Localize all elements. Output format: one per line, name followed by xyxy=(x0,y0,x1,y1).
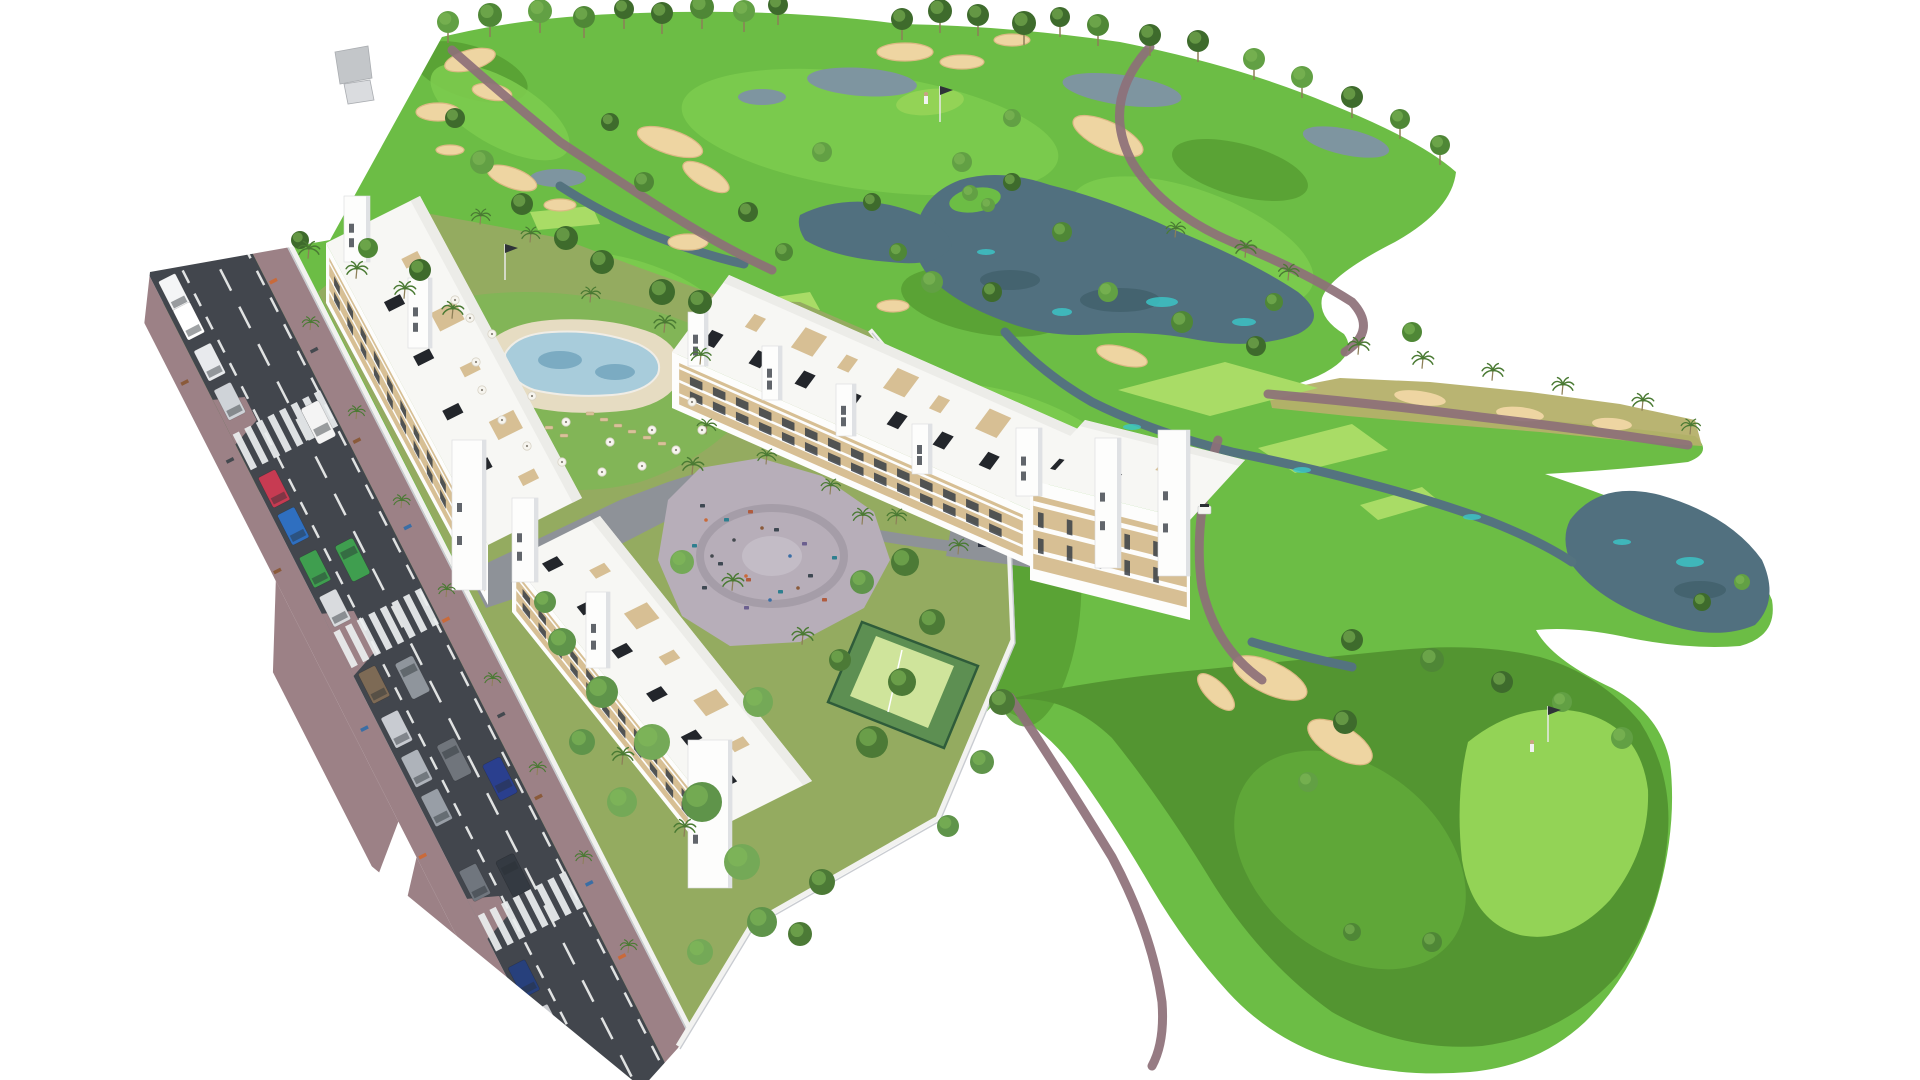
tree-highlight xyxy=(812,871,826,885)
palm-tree xyxy=(1552,378,1574,395)
tree-highlight xyxy=(616,1,627,12)
tree-highlight xyxy=(1173,313,1185,325)
tree-highlight xyxy=(610,789,627,806)
palm-trunk xyxy=(766,456,767,465)
tree-highlight xyxy=(984,284,995,295)
tree-highlight xyxy=(972,752,985,765)
tree-highlight xyxy=(982,199,990,207)
tower-window xyxy=(767,369,772,378)
palm-trunk xyxy=(446,589,447,597)
water-highlight xyxy=(1613,539,1631,545)
person-dot xyxy=(768,598,772,602)
tower-window xyxy=(457,503,462,512)
tower-window xyxy=(413,307,418,316)
tower-window xyxy=(1021,472,1026,481)
water-highlight xyxy=(1676,557,1704,567)
palm-trunk xyxy=(896,516,897,525)
golf-cart-roof xyxy=(1200,504,1209,507)
tower-window xyxy=(591,624,596,633)
tree-highlight xyxy=(1054,224,1065,235)
tree-highlight xyxy=(750,909,767,926)
palm-trunk xyxy=(401,500,402,508)
tree-highlight xyxy=(1404,324,1415,335)
tower-shade xyxy=(534,498,538,582)
parasol-pole xyxy=(609,441,611,443)
tree-highlight xyxy=(1424,934,1435,945)
water-highlight xyxy=(1146,297,1178,307)
tree-highlight xyxy=(1343,88,1355,100)
tree-highlight xyxy=(652,281,666,295)
palm-frond xyxy=(1493,364,1498,371)
tree-highlight xyxy=(530,1,543,14)
palm-frond xyxy=(1493,371,1503,377)
tree-highlight xyxy=(572,731,586,745)
parasol-pole xyxy=(469,317,471,319)
sand-bunker xyxy=(877,300,909,312)
parasol-pole xyxy=(501,419,503,421)
sand-bunker xyxy=(940,55,984,69)
person-dot xyxy=(796,586,800,590)
tree-highlight xyxy=(1100,284,1111,295)
aerial-render-page xyxy=(0,0,1920,1080)
tree-highlight xyxy=(790,924,803,937)
tree-highlight xyxy=(1014,13,1027,26)
play-equipment xyxy=(774,528,779,532)
parasol-pole xyxy=(491,333,493,335)
tree-highlight xyxy=(939,817,951,829)
tower-window xyxy=(517,552,522,561)
tree-highlight xyxy=(893,10,905,22)
tree-highlight xyxy=(923,273,935,285)
parasol-pole xyxy=(561,461,563,463)
tower-shade xyxy=(428,278,432,348)
tree-highlight xyxy=(992,691,1006,705)
parasol-pole xyxy=(641,465,643,467)
tree-highlight xyxy=(728,847,748,867)
tree-highlight xyxy=(636,174,647,185)
tree-highlight xyxy=(1141,26,1153,38)
tree-highlight xyxy=(638,727,658,747)
palm-trunk xyxy=(628,945,629,953)
palm-tree xyxy=(1412,352,1434,369)
tree-highlight xyxy=(894,550,909,565)
golf-cart xyxy=(1198,506,1211,514)
palm-trunk xyxy=(452,309,453,319)
parasol-pole xyxy=(526,445,528,447)
palm-trunk xyxy=(684,827,685,837)
maintenance-building xyxy=(335,46,372,84)
palm-trunk xyxy=(1358,345,1359,355)
tree-highlight xyxy=(891,670,906,685)
play-equipment xyxy=(748,510,753,514)
tower-shade xyxy=(1117,438,1121,568)
tree-highlight xyxy=(1736,575,1745,584)
pool-deep-area xyxy=(538,351,582,369)
tree-highlight xyxy=(1300,774,1311,785)
person-dot xyxy=(760,526,764,530)
tree-highlight xyxy=(735,2,747,14)
tree-highlight xyxy=(1695,594,1705,604)
water-highlight xyxy=(1123,424,1141,430)
maintenance-building xyxy=(344,80,374,104)
sun-lounger xyxy=(614,424,622,427)
palm-trunk xyxy=(480,216,481,225)
palm-trunk xyxy=(622,755,623,765)
golfer-head xyxy=(924,92,928,96)
tower-window xyxy=(517,533,522,542)
palm-trunk xyxy=(830,486,831,495)
palm-trunk xyxy=(492,678,493,686)
sun-lounger xyxy=(643,436,651,439)
tower-window xyxy=(1163,523,1168,532)
parasol-pole xyxy=(675,449,677,451)
tree-highlight xyxy=(1554,694,1565,705)
parasol-pole xyxy=(565,421,567,423)
tree-highlight xyxy=(740,204,751,215)
sand-bunker xyxy=(436,145,464,155)
tree-highlight xyxy=(293,232,303,242)
pool-deep-area xyxy=(595,364,635,380)
palm-trunk xyxy=(1642,401,1643,411)
palm-trunk xyxy=(732,581,733,591)
roof-tower xyxy=(452,440,486,590)
palm-frond xyxy=(1553,385,1563,391)
window xyxy=(1038,512,1044,528)
palm-trunk xyxy=(404,289,405,299)
play-equipment xyxy=(744,606,749,610)
tree-highlight xyxy=(859,728,877,746)
tree-highlight xyxy=(1613,729,1625,741)
play-equipment xyxy=(724,518,729,522)
palm-trunk xyxy=(958,546,959,555)
tower-window xyxy=(349,238,354,247)
play-equipment xyxy=(802,542,807,546)
golfer xyxy=(1530,744,1534,752)
palm-trunk xyxy=(1175,229,1176,238)
tree-highlight xyxy=(1005,110,1015,120)
parasol-pole xyxy=(701,429,703,431)
tree-highlight xyxy=(480,5,493,18)
palm-frond xyxy=(1563,385,1573,391)
palm-trunk xyxy=(530,234,531,243)
parasol-pole xyxy=(481,389,483,391)
palm-trunk xyxy=(310,322,311,330)
window xyxy=(1067,545,1073,561)
tree-highlight xyxy=(1189,32,1201,44)
tree-highlight xyxy=(603,114,613,124)
palm-trunk xyxy=(1562,385,1563,395)
palm-frond xyxy=(1423,359,1433,365)
tree-highlight xyxy=(1422,650,1435,663)
tree-highlight xyxy=(1392,111,1403,122)
palm-frond xyxy=(1413,359,1423,365)
tower-shade xyxy=(704,312,708,366)
person-dot xyxy=(744,574,748,578)
palm-trunk xyxy=(308,249,309,259)
plaza-center xyxy=(742,536,802,576)
parasol-pole xyxy=(531,395,533,397)
tower-shade xyxy=(852,384,856,436)
tree-highlight xyxy=(930,1,943,14)
palm-frond xyxy=(1633,401,1643,407)
sun-lounger xyxy=(586,412,594,415)
tree-highlight xyxy=(447,110,458,121)
play-equipment xyxy=(746,578,751,582)
person-dot xyxy=(704,518,708,522)
tree-highlight xyxy=(439,13,451,25)
water-highlight xyxy=(1232,318,1256,326)
tree-highlight xyxy=(1293,68,1305,80)
tower-window xyxy=(767,381,772,390)
window xyxy=(1124,534,1130,550)
tree-highlight xyxy=(556,228,569,241)
tree-highlight xyxy=(746,689,763,706)
sand-bunker xyxy=(544,199,576,211)
tower-shade xyxy=(1186,430,1190,576)
tree-highlight xyxy=(1343,631,1355,643)
tree-highlight xyxy=(954,154,965,165)
tree-highlight xyxy=(690,941,704,955)
tower-window xyxy=(917,445,922,454)
tree-highlight xyxy=(1052,9,1063,20)
sun-lounger xyxy=(560,434,568,437)
golfer-head xyxy=(1530,740,1534,744)
tree-highlight xyxy=(411,261,423,273)
play-equipment xyxy=(808,574,813,578)
tree-highlight xyxy=(1245,50,1257,62)
golfer xyxy=(924,96,928,104)
water-highlight xyxy=(1293,467,1311,473)
sun-lounger xyxy=(658,442,666,445)
palm-trunk xyxy=(537,767,538,775)
tower-window xyxy=(1021,457,1026,466)
play-equipment xyxy=(822,598,827,602)
palm-tree xyxy=(1482,364,1504,381)
person-dot xyxy=(710,554,714,558)
tree-highlight xyxy=(969,6,981,18)
tree-highlight xyxy=(360,240,371,251)
tree-highlight xyxy=(777,244,787,254)
tower-window xyxy=(1163,491,1168,500)
tower-window xyxy=(693,335,698,344)
tree-highlight xyxy=(472,152,485,165)
palm-trunk xyxy=(1492,371,1493,381)
parasol-pole xyxy=(454,299,456,301)
tree-highlight xyxy=(964,186,973,195)
tree-highlight xyxy=(653,4,665,16)
tower-window xyxy=(693,835,698,844)
window xyxy=(1067,519,1073,535)
tree-highlight xyxy=(551,630,566,645)
tree-highlight xyxy=(922,611,936,625)
tower-window xyxy=(349,224,354,233)
parasol-pole xyxy=(651,429,653,431)
tree-highlight xyxy=(513,195,525,207)
palm-trunk xyxy=(802,635,803,645)
water-highlight xyxy=(977,249,995,255)
tree-highlight xyxy=(891,244,901,254)
palm-frond xyxy=(1423,352,1428,359)
tower-window xyxy=(1100,521,1105,530)
tower-window xyxy=(841,417,846,426)
tree-highlight xyxy=(536,593,548,605)
tree-highlight xyxy=(852,572,865,585)
palm-trunk xyxy=(590,294,591,303)
tower-shade xyxy=(778,346,782,400)
tower-window xyxy=(917,456,922,465)
tree-highlight xyxy=(1335,712,1348,725)
tower-shade xyxy=(482,440,486,590)
palm-trunk xyxy=(356,411,357,419)
tree-highlight xyxy=(575,8,587,20)
palm-trunk xyxy=(356,269,357,279)
tree-highlight xyxy=(1345,924,1355,934)
tower-window xyxy=(413,323,418,332)
tree-highlight xyxy=(1432,137,1443,148)
tower-window xyxy=(1100,493,1105,502)
palm-frond xyxy=(1483,371,1493,377)
tower-shade xyxy=(606,592,610,668)
tower-window xyxy=(591,641,596,650)
palm-frond xyxy=(1359,345,1369,351)
tree-highlight xyxy=(672,552,685,565)
play-equipment xyxy=(718,562,723,566)
person-dot xyxy=(732,538,736,542)
palm-trunk xyxy=(583,856,584,864)
window xyxy=(1038,538,1044,554)
person-dot xyxy=(788,554,792,558)
window xyxy=(1124,560,1130,576)
play-equipment xyxy=(702,586,707,590)
palm-trunk xyxy=(1690,426,1691,435)
tower-shade xyxy=(1038,428,1042,496)
play-equipment xyxy=(832,556,837,560)
tree-highlight xyxy=(690,292,703,305)
tree-highlight xyxy=(1089,16,1101,28)
tree-highlight xyxy=(1248,338,1259,349)
palm-trunk xyxy=(700,355,701,364)
palm-frond xyxy=(1643,394,1648,401)
sun-lounger xyxy=(545,426,553,429)
palm-frond xyxy=(1643,401,1653,407)
sand-bunker xyxy=(877,43,933,61)
play-equipment xyxy=(692,544,697,548)
tree-highlight xyxy=(1267,294,1277,304)
palm-trunk xyxy=(692,465,693,475)
palm-trunk xyxy=(1288,271,1289,280)
palm-trunk xyxy=(664,323,665,333)
palm-frond xyxy=(1563,378,1568,385)
tower-shade xyxy=(928,424,932,474)
water-highlight xyxy=(1463,514,1481,520)
tower-window xyxy=(841,406,846,415)
tree-highlight xyxy=(814,144,825,155)
pond xyxy=(738,89,786,105)
tree-highlight xyxy=(686,785,708,807)
roof-tower xyxy=(1158,430,1190,576)
parasol-pole xyxy=(601,471,603,473)
sun-lounger xyxy=(628,430,636,433)
parasol-pole xyxy=(475,361,477,363)
palm-trunk xyxy=(862,515,863,524)
palm-trunk xyxy=(1422,359,1423,369)
tree-highlight xyxy=(592,252,605,265)
palm-trunk xyxy=(1245,248,1246,258)
tree-highlight xyxy=(1493,673,1505,685)
play-equipment xyxy=(778,590,783,594)
canvas xyxy=(0,0,1920,1080)
play-equipment xyxy=(700,504,705,508)
tree-highlight xyxy=(865,194,875,204)
tree-highlight xyxy=(589,678,607,696)
sun-lounger xyxy=(600,418,608,421)
water-highlight xyxy=(1052,308,1072,316)
tree-highlight xyxy=(1005,174,1015,184)
tower-window xyxy=(457,536,462,545)
tree-highlight xyxy=(831,651,843,663)
parasol-pole xyxy=(691,401,693,403)
